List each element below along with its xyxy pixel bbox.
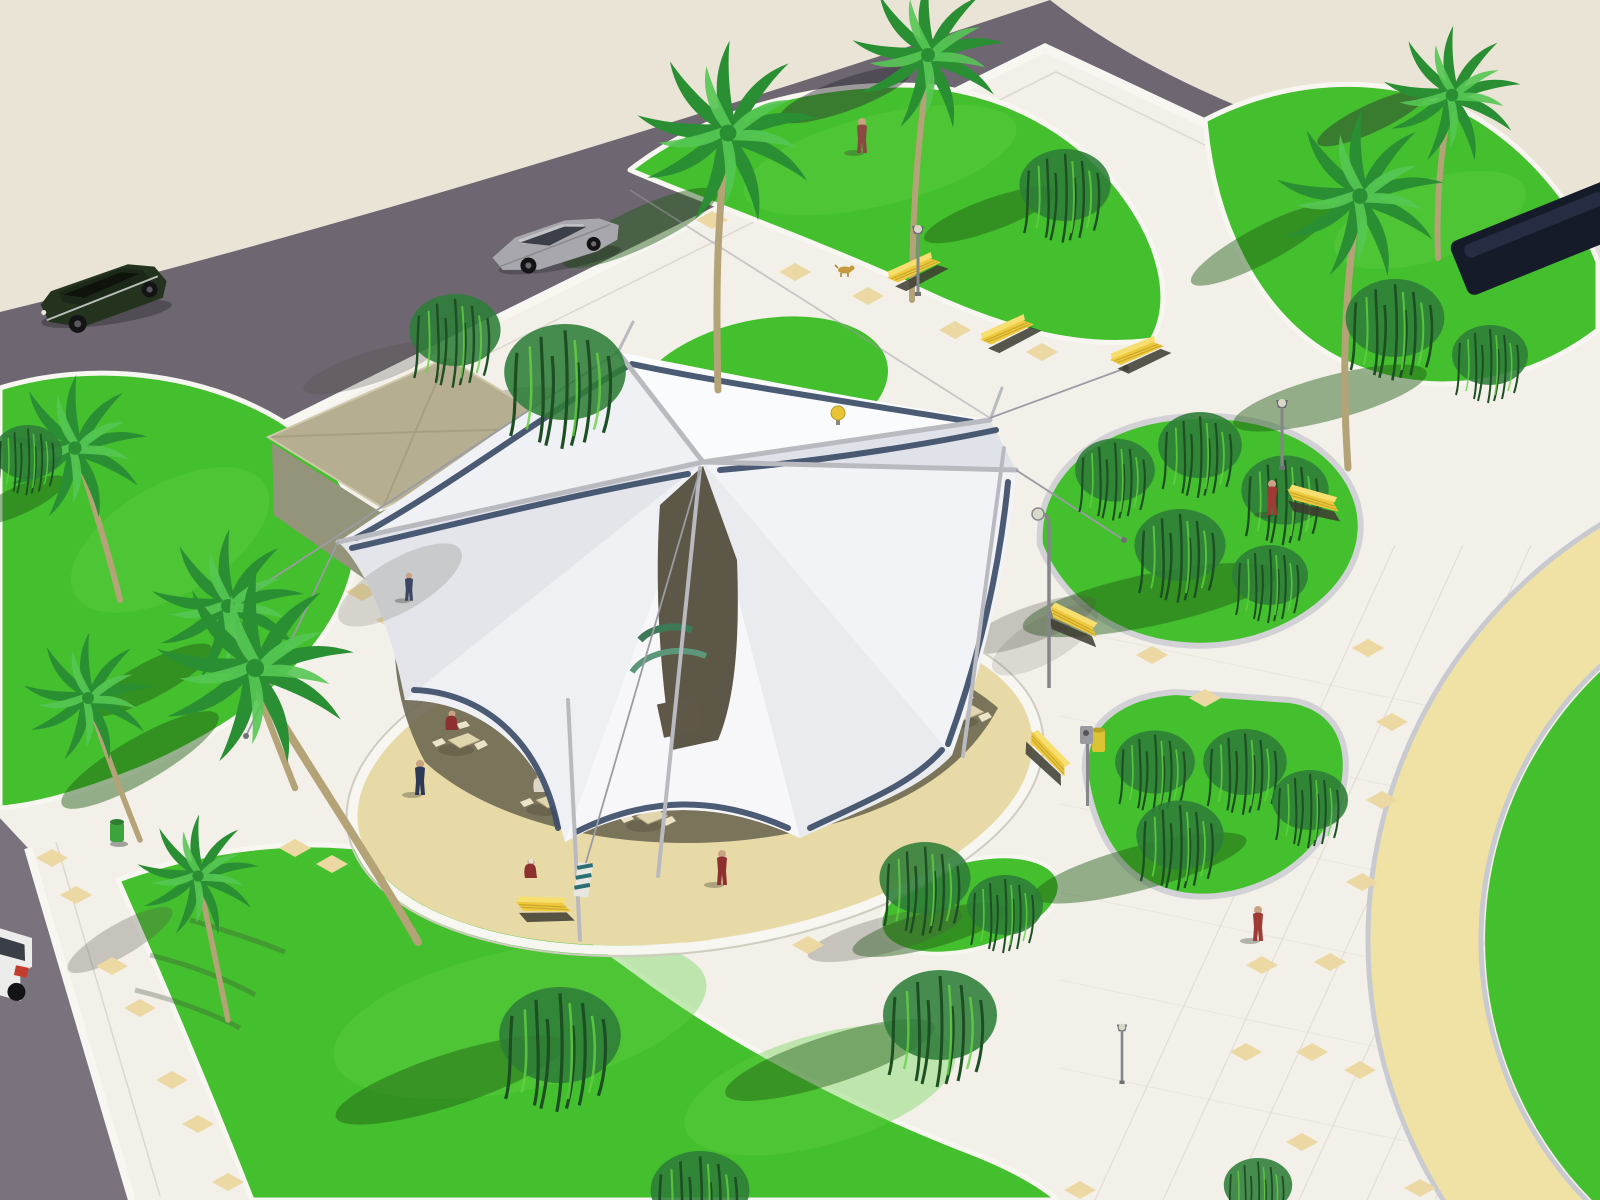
rendered-scene (0, 0, 1600, 1200)
park-plaza-rendering (0, 0, 1600, 1200)
yellow-trash-bin (1092, 728, 1105, 753)
